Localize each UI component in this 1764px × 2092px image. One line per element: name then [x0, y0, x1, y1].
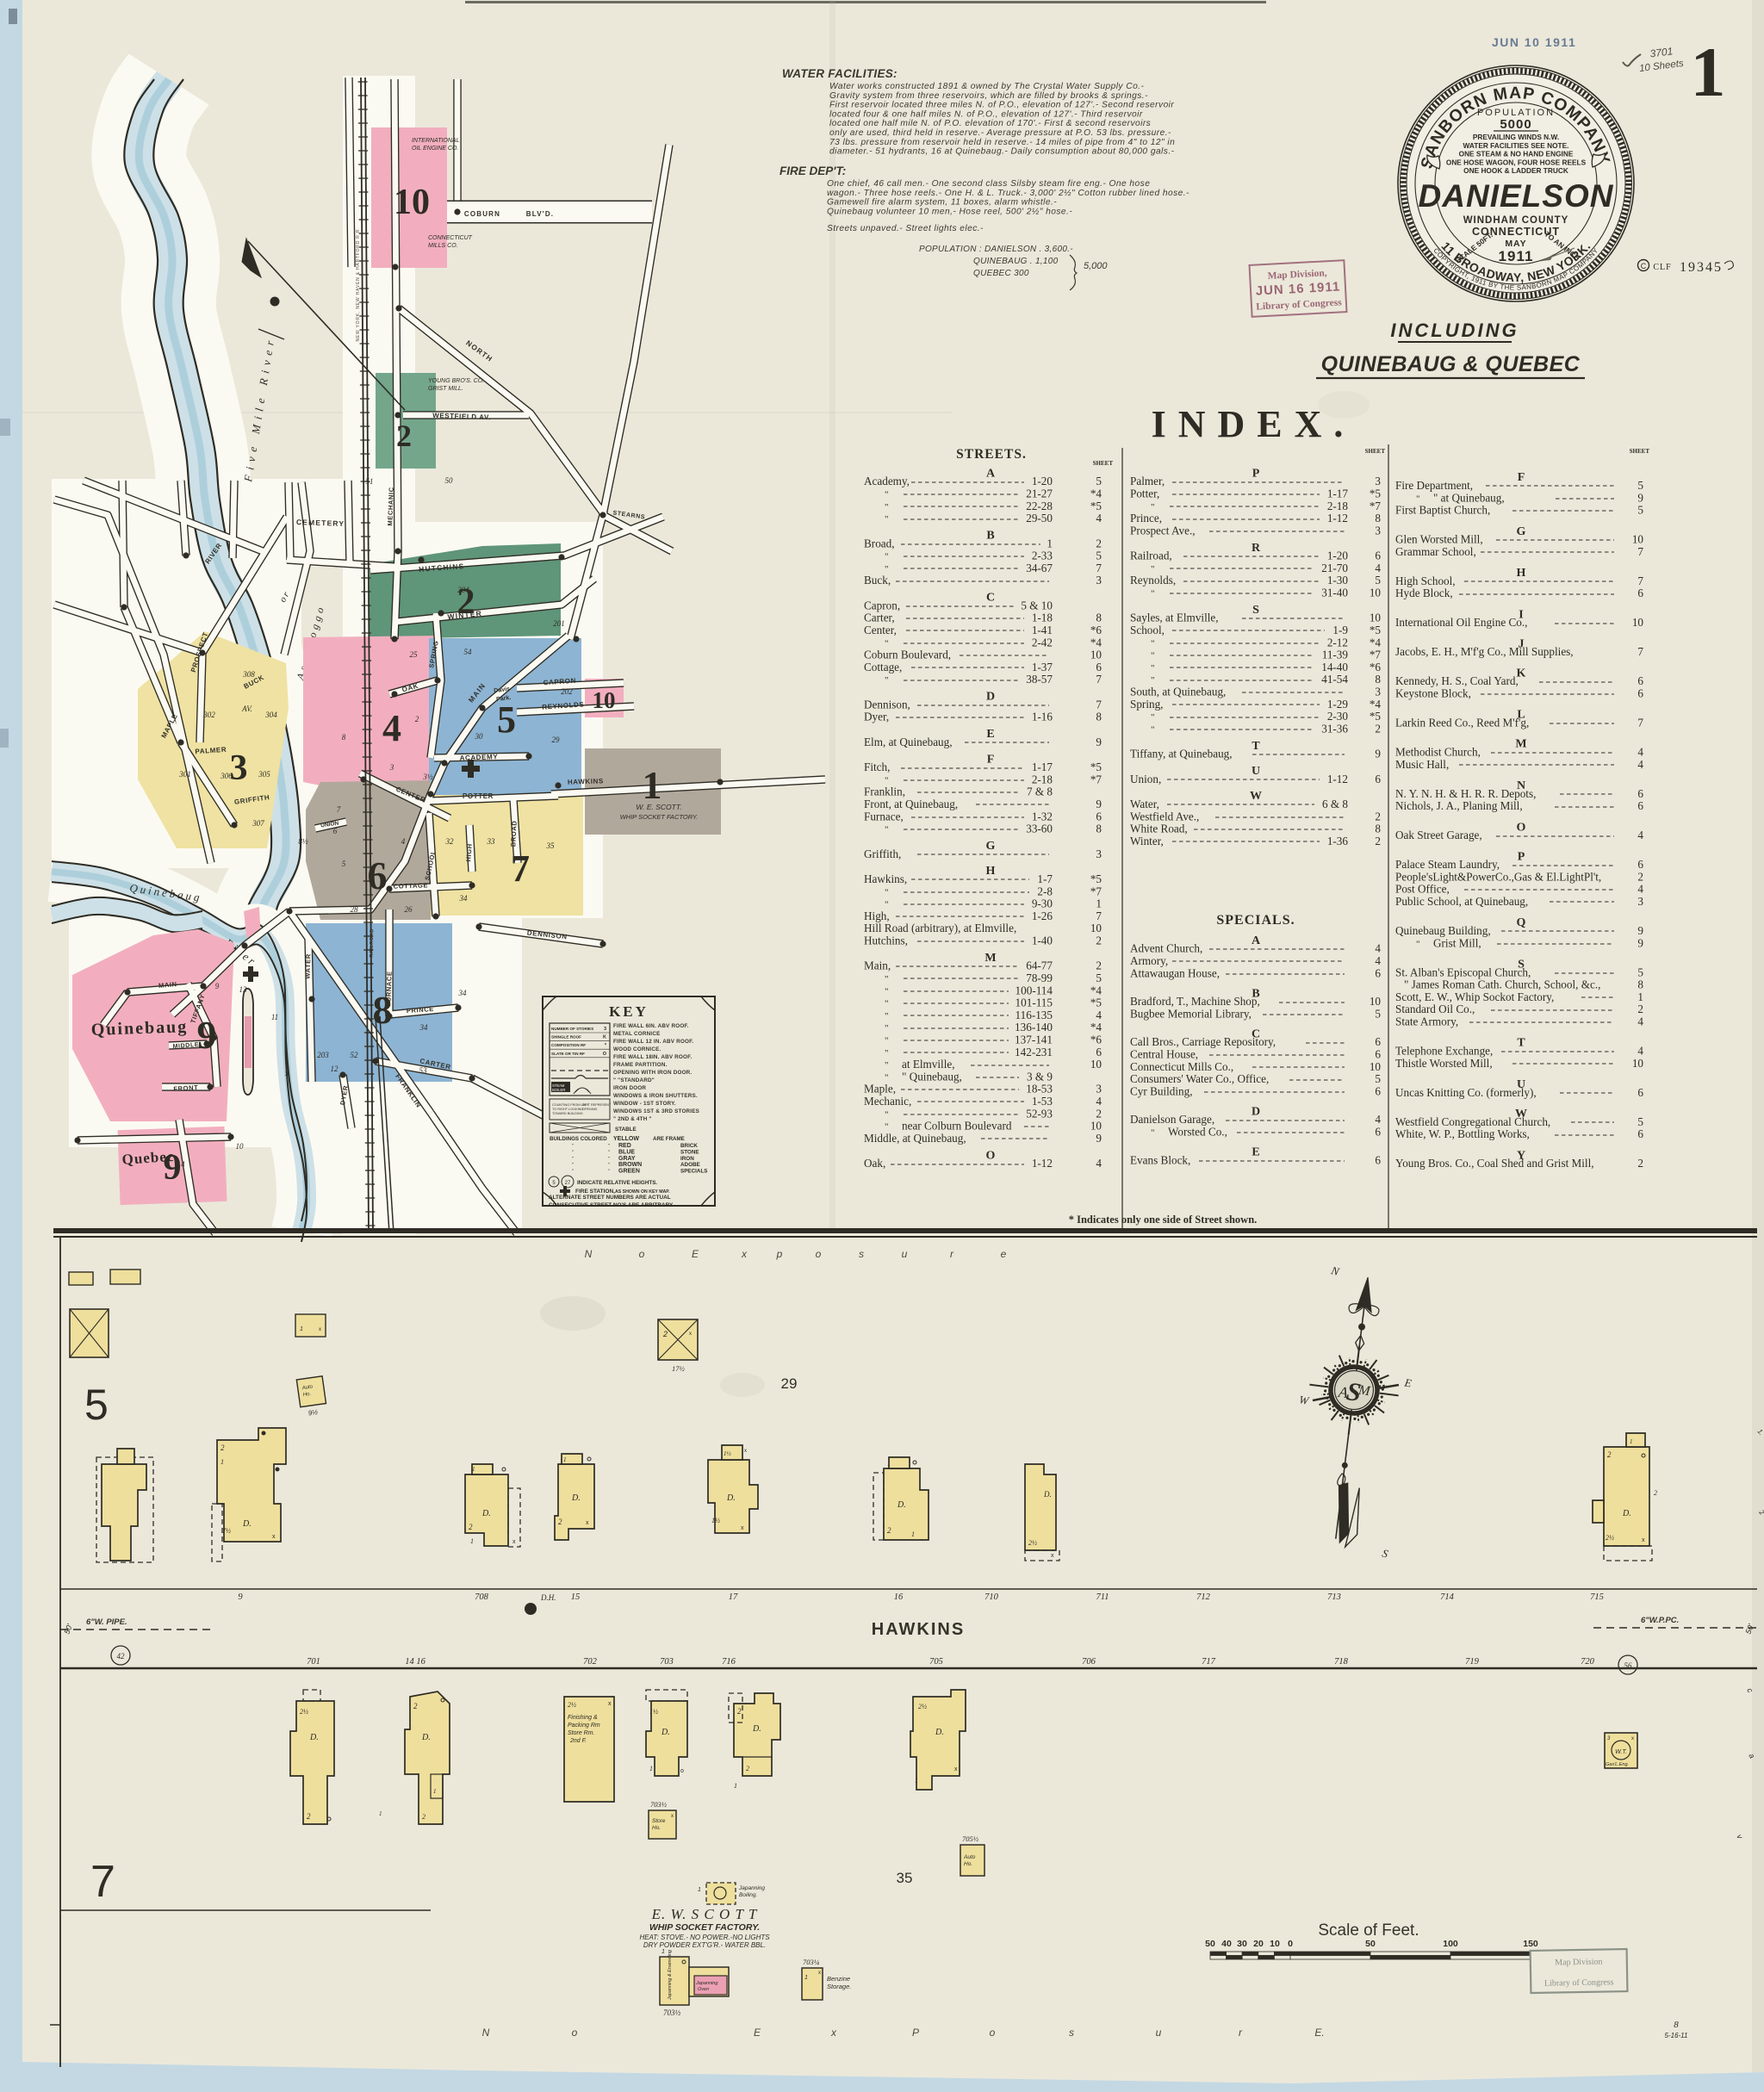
svg-text:Carter,: Carter, [864, 611, 895, 624]
svg-text:Telephone Exchange,: Telephone Exchange, [1395, 1045, 1493, 1058]
svg-text:10: 10 [1370, 587, 1382, 599]
svg-text:5: 5 [1637, 504, 1643, 517]
svg-text:Cyr Building,: Cyr Building, [1130, 1084, 1193, 1097]
svg-text:FIRE STATION,: FIRE STATION, [575, 1189, 615, 1195]
svg-text:O: O [1517, 821, 1526, 834]
svg-text:": " [572, 1150, 574, 1155]
svg-text:51: 51 [366, 477, 374, 486]
svg-text:": " [1151, 589, 1155, 599]
svg-text:D.: D. [661, 1728, 670, 1737]
svg-text:Standard Oil Co.,: Standard Oil Co., [1395, 1003, 1475, 1015]
svg-text:IRON: IRON [680, 1156, 694, 1162]
svg-text:located four & one half miles: located four & one half miles N. of P.O.… [829, 109, 1143, 119]
svg-text:D: D [986, 691, 995, 704]
svg-text:716: 716 [722, 1657, 736, 1667]
svg-text:WINDOWS & IRON SHUTTERS.: WINDOWS & IRON SHUTTERS. [613, 1093, 698, 1099]
svg-text:*4: *4 [1370, 636, 1382, 649]
svg-text:ONE HOOK & LADDER TRUCK: ONE HOOK & LADDER TRUCK [1463, 166, 1568, 175]
svg-text:12: 12 [331, 1065, 339, 1073]
svg-text:1-29: 1-29 [1327, 698, 1349, 711]
svg-text:": " [1151, 564, 1155, 574]
svg-text:50: 50 [1365, 1939, 1376, 1949]
svg-text:8: 8 [1674, 2020, 1679, 2030]
svg-text:10: 10 [236, 1142, 245, 1151]
svg-text:BUILDINGS COLORED: BUILDINGS COLORED [550, 1136, 607, 1142]
svg-text:6: 6 [333, 827, 338, 835]
svg-text:INDEX.: INDEX. [1152, 403, 1356, 445]
svg-text:7: 7 [337, 805, 341, 814]
svg-text:Griffith,: Griffith, [864, 847, 901, 860]
svg-text:Cottage,: Cottage, [864, 661, 902, 674]
svg-text:4: 4 [1375, 942, 1381, 955]
svg-text:10: 10 [1090, 1120, 1102, 1133]
svg-text:4: 4 [1637, 746, 1643, 759]
svg-text:6: 6 [1096, 810, 1102, 823]
svg-text:6: 6 [1637, 858, 1643, 871]
svg-text:3: 3 [604, 1027, 606, 1032]
svg-text:Attawaugan House,: Attawaugan House, [1130, 966, 1220, 979]
svg-text:10: 10 [1370, 1060, 1382, 1073]
svg-text:Water works constructed 1891 &: Water works constructed 1891 & owned by … [829, 82, 1144, 91]
svg-text:10: 10 [1632, 616, 1644, 629]
svg-text:701: 701 [307, 1657, 320, 1667]
svg-text:0: 0 [1288, 1939, 1293, 1949]
svg-text:Tiffany, at Quinebaug,: Tiffany, at Quinebaug, [1130, 748, 1233, 760]
svg-text:E: E [692, 1248, 699, 1260]
svg-text:5: 5 [1096, 475, 1102, 487]
svg-text:Furnace,: Furnace, [864, 810, 904, 823]
svg-text:5,000: 5,000 [1084, 261, 1108, 271]
svg-text:2-12: 2-12 [1327, 636, 1348, 649]
svg-text:53: 53 [419, 1066, 428, 1075]
svg-text:302: 302 [202, 711, 215, 719]
svg-text:1-26: 1-26 [1032, 909, 1053, 922]
svg-text:1: 1 [1047, 537, 1053, 549]
svg-text:DANIELSON: DANIELSON [1419, 178, 1614, 214]
svg-text:30: 30 [475, 732, 484, 741]
svg-text:*5: *5 [1090, 760, 1102, 773]
svg-text:POTTER: POTTER [463, 792, 494, 800]
svg-text:MAIN: MAIN [158, 980, 177, 990]
svg-text:": " [885, 1023, 889, 1034]
svg-text:Hutchins,: Hutchins, [864, 934, 908, 947]
svg-text:11: 11 [271, 1013, 278, 1021]
svg-text:*4: *4 [1090, 1021, 1102, 1034]
svg-text:KEY: KEY [609, 1003, 649, 1020]
svg-text:Palmer,: Palmer, [1130, 475, 1165, 487]
svg-text:only are used, third held in r: only are used, third held in reserve.- A… [829, 128, 1171, 138]
svg-text:2: 2 [396, 419, 412, 453]
svg-text:NUMBER OF STORIES: NUMBER OF STORIES [551, 1027, 593, 1031]
svg-text:FIRE WALL 6IN. ABV ROOF.: FIRE WALL 6IN. ABV ROOF. [613, 1023, 689, 1029]
svg-text:4: 4 [1637, 758, 1643, 771]
svg-text:INCLUDING: INCLUDING [1390, 320, 1519, 341]
svg-text:SHEET: SHEET [1630, 448, 1650, 455]
svg-text:MECHANIC: MECHANIC [386, 487, 395, 526]
svg-text:B: B [986, 530, 994, 543]
svg-text:Japanning: Japanning [695, 1981, 718, 1986]
svg-text:Nichols, J. A., Planing Mill,: Nichols, J. A., Planing Mill, [1395, 799, 1523, 812]
svg-text:ALTERNATE STREET NUMBERS ARE A: ALTERNATE STREET NUMBERS ARE ACTUAL [549, 1195, 671, 1201]
svg-text:4: 4 [1637, 829, 1643, 841]
svg-text:*5: *5 [1370, 624, 1382, 636]
svg-text:Uncas Knitting Co. (formerly),: Uncas Knitting Co. (formerly), [1395, 1086, 1537, 1099]
svg-text:7: 7 [1096, 673, 1102, 686]
svg-text:RAILROAD: RAILROAD [370, 928, 376, 958]
svg-text:GRIST MILL.: GRIST MILL. [428, 386, 463, 392]
svg-text:4: 4 [1637, 1015, 1643, 1028]
svg-text:*6: *6 [1090, 624, 1102, 636]
svg-text:": " [1151, 712, 1155, 723]
svg-text:": " [885, 1122, 889, 1133]
svg-text:1: 1 [1637, 990, 1643, 1003]
svg-text:INTERNATIONAL: INTERNATIONAL [412, 138, 460, 144]
svg-text:WATER FACILITIES:: WATER FACILITIES: [782, 67, 898, 80]
svg-text:JUN 10 1911: JUN 10 1911 [1492, 35, 1576, 49]
svg-text:*5: *5 [1090, 500, 1102, 512]
svg-text:3½: 3½ [422, 773, 433, 781]
svg-text:1: 1 [1096, 897, 1102, 910]
svg-text:715: 715 [1590, 1592, 1604, 1602]
svg-text:7: 7 [1096, 698, 1102, 711]
svg-text:BROWN: BROWN [618, 1162, 642, 1168]
svg-text:QUINEBAUG . 1,100: QUINEBAUG . 1,100 [973, 257, 1059, 266]
svg-text:34: 34 [459, 894, 469, 903]
svg-text:1: 1 [220, 1458, 224, 1466]
svg-text:COMPOSITION RF: COMPOSITION RF [551, 1043, 586, 1047]
svg-text:19345: 19345 [1680, 260, 1723, 275]
svg-text:AV.: AV. [241, 705, 252, 713]
svg-text:9-30: 9-30 [1032, 897, 1053, 910]
svg-text:South, at Quinebaug,: South, at Quinebaug, [1130, 686, 1226, 698]
svg-text:137-141: 137-141 [1015, 1034, 1053, 1046]
svg-text:710: 710 [984, 1592, 999, 1602]
svg-text:1: 1 [887, 1461, 891, 1468]
svg-text:D.: D. [726, 1493, 736, 1503]
svg-text:s: s [1069, 2027, 1074, 2039]
svg-text:1-12: 1-12 [1032, 1157, 1053, 1170]
svg-text:100-114: 100-114 [1016, 984, 1053, 996]
svg-text:6: 6 [1637, 1127, 1643, 1140]
svg-text:": " [608, 1150, 610, 1155]
svg-text:2½: 2½ [1606, 1534, 1614, 1542]
svg-text:Japanning & Enameling: Japanning & Enameling [668, 1949, 673, 2001]
svg-text:41-54: 41-54 [1321, 673, 1348, 686]
svg-text:STREETS.: STREETS. [956, 447, 1027, 462]
svg-text:6: 6 [1637, 587, 1643, 599]
svg-text:2: 2 [307, 1812, 311, 1821]
svg-text:6: 6 [1375, 1126, 1381, 1139]
svg-text:Coburn Boulevard,: Coburn Boulevard, [864, 649, 951, 661]
svg-text:Post Office,: Post Office, [1395, 883, 1450, 896]
svg-text:R: R [1252, 542, 1261, 555]
svg-text:6"W. PIPE.: 6"W. PIPE. [86, 1617, 127, 1627]
svg-text:2-30: 2-30 [1327, 710, 1349, 723]
svg-text:ACADEMY: ACADEMY [459, 753, 498, 762]
svg-text:42: 42 [117, 1652, 126, 1661]
svg-text:*4: *4 [1370, 698, 1382, 711]
svg-text:T: T [1517, 1037, 1525, 1050]
svg-text:A: A [1252, 934, 1261, 947]
svg-text:7: 7 [511, 847, 530, 890]
svg-text:Front, at Quinebaug,: Front, at Quinebaug, [864, 798, 958, 810]
svg-text:One chief, 46 call men.- One s: One chief, 46 call men.- One second clas… [827, 179, 1150, 189]
svg-text:C: C [1641, 262, 1647, 270]
svg-text:50: 50 [445, 476, 454, 485]
svg-text:8: 8 [1637, 978, 1643, 991]
svg-text:27: 27 [565, 1181, 571, 1186]
svg-text:QUINEBAUG & QUEBEC: QUINEBAUG & QUEBEC [1321, 352, 1581, 376]
svg-text:1-7: 1-7 [1037, 872, 1053, 885]
svg-text:BRICK: BRICK [680, 1143, 698, 1149]
svg-text:NEW YORK, NEW HAVEN & HARTFORD: NEW YORK, NEW HAVEN & HARTFORD R.R. [356, 227, 361, 341]
svg-text:Middle, at Quinebaug,: Middle, at Quinebaug, [864, 1132, 966, 1145]
svg-text:*5: *5 [1090, 872, 1102, 885]
svg-text:FIRE DEP'T:: FIRE DEP'T: [780, 165, 846, 177]
svg-text:": " [885, 999, 889, 1009]
svg-text:9½: 9½ [307, 1408, 319, 1418]
svg-text:21-27: 21-27 [1026, 487, 1053, 500]
svg-text:": " [885, 502, 889, 512]
svg-text:": " [885, 986, 889, 996]
svg-text:4: 4 [1096, 1095, 1102, 1108]
svg-text:2: 2 [413, 1702, 418, 1710]
svg-text:1: 1 [1630, 1438, 1633, 1445]
svg-text:HEAT: STOVE.- NO POWER.-NO LIG: HEAT: STOVE.- NO POWER.-NO LIGHTS [639, 1934, 770, 1941]
svg-text:FIRE WALL 18IN. ABV ROOF.: FIRE WALL 18IN. ABV ROOF. [613, 1054, 692, 1060]
svg-text:7: 7 [1637, 645, 1643, 658]
svg-text:6: 6 [1375, 773, 1381, 785]
svg-text:ADOBE: ADOBE [680, 1162, 700, 1168]
svg-text:1-40: 1-40 [1032, 934, 1053, 947]
svg-text:D.: D. [571, 1493, 581, 1503]
svg-text:ONE HOSE WAGON, FOUR HOSE REEL: ONE HOSE WAGON, FOUR HOSE REELS [1446, 158, 1587, 166]
svg-text:": " [885, 638, 889, 649]
svg-text:" "STANDARD": " "STANDARD" [613, 1077, 655, 1083]
svg-text:32: 32 [445, 837, 455, 846]
svg-text:31-40: 31-40 [1321, 587, 1348, 599]
svg-text:": " [885, 552, 889, 562]
svg-text:64-77: 64-77 [1026, 959, 1053, 972]
svg-text:*4: *4 [1090, 636, 1102, 649]
svg-text:": " [1151, 638, 1155, 649]
svg-text:SPECIALS: SPECIALS [680, 1169, 708, 1175]
svg-text:W.T.: W.T. [1615, 1749, 1627, 1755]
svg-text:Oak Street Garage,: Oak Street Garage, [1395, 829, 1482, 841]
svg-text:2: 2 [1375, 835, 1381, 847]
svg-text:WINDOWS 1ST & 3RD STORIES: WINDOWS 1ST & 3RD STORIES [613, 1108, 699, 1114]
svg-text:8: 8 [342, 733, 346, 742]
svg-text:BOILER: BOILER [552, 1088, 565, 1092]
svg-text:2½: 2½ [568, 1701, 576, 1709]
svg-text:5000: 5000 [1500, 117, 1531, 132]
svg-text:2nd F.: 2nd F. [569, 1738, 587, 1744]
svg-text:14 16: 14 16 [405, 1657, 425, 1667]
svg-text:305: 305 [258, 770, 270, 779]
svg-text:14-40: 14-40 [1321, 661, 1348, 674]
svg-text:D.: D. [1622, 1509, 1631, 1518]
svg-text:Dennison,: Dennison, [864, 698, 910, 711]
svg-text:2½: 2½ [918, 1703, 927, 1710]
svg-text:5: 5 [1637, 479, 1643, 492]
svg-text:Sayles, at Elmville,: Sayles, at Elmville, [1130, 611, 1219, 624]
svg-text:720: 720 [1581, 1657, 1595, 1667]
svg-text:YOUNG BRO'S. CO.: YOUNG BRO'S. CO. [428, 378, 484, 384]
svg-text:o: o [639, 1248, 645, 1260]
svg-text:2: 2 [1607, 1450, 1612, 1459]
svg-text:P: P [1252, 467, 1260, 480]
svg-text:17½: 17½ [672, 1364, 686, 1373]
svg-text:": " [885, 675, 889, 686]
svg-text:4: 4 [1096, 512, 1102, 525]
svg-text:Oak,: Oak, [864, 1157, 885, 1170]
svg-text:POPULATION : DANIELSON . 3,600: POPULATION : DANIELSON . 3,600.- [919, 245, 1073, 254]
svg-text:3: 3 [230, 748, 248, 788]
svg-text:p: p [776, 1248, 783, 1260]
svg-text:": " [885, 1072, 889, 1083]
svg-text:Boiling.: Boiling. [739, 1892, 758, 1898]
svg-text:2: 2 [1096, 1107, 1102, 1120]
svg-text:": " [608, 1170, 610, 1175]
svg-text:702: 702 [583, 1657, 598, 1667]
svg-text:o: o [990, 2027, 996, 2039]
svg-text:*5: *5 [1370, 487, 1382, 500]
svg-text:x: x [1642, 1537, 1645, 1543]
svg-text:Potter,: Potter, [1130, 487, 1159, 500]
svg-text:Quinebaug volunteer 10 men,- H: Quinebaug volunteer 10 men,- Hose reel, … [827, 207, 1072, 216]
svg-text:8: 8 [1375, 512, 1381, 525]
svg-text:x: x [272, 1534, 276, 1540]
svg-text:1: 1 [300, 1326, 303, 1332]
svg-text:Gravity system from three rese: Gravity system from three reservoirs, wh… [829, 91, 1148, 101]
svg-text:DO T REPRESENT: DO T REPRESENT [582, 1103, 612, 1107]
svg-text:WINDHAM COUNTY: WINDHAM COUNTY [1463, 215, 1569, 226]
svg-text:": " [885, 1109, 889, 1120]
svg-text:1911: 1911 [1499, 248, 1534, 264]
svg-text:2: 2 [887, 1526, 891, 1535]
svg-text:x: x [954, 1766, 958, 1772]
svg-text:2½: 2½ [300, 1708, 308, 1716]
svg-text:P: P [1518, 850, 1525, 863]
svg-text:x: x [608, 1701, 612, 1707]
svg-text:D: D [1252, 1105, 1260, 1118]
svg-text:136-140: 136-140 [1015, 1021, 1053, 1034]
svg-text:x: x [689, 1332, 692, 1337]
svg-text:2: 2 [457, 582, 475, 622]
svg-text:30: 30 [1237, 1939, 1247, 1949]
svg-text:7: 7 [1637, 545, 1643, 558]
svg-text:6: 6 [368, 854, 388, 897]
svg-text:DRY POWDER EXT'G'R.- WATER BBL: DRY POWDER EXT'G'R.- WATER BBL. [643, 1941, 766, 1949]
svg-text:P: P [912, 2027, 919, 2039]
svg-text:Reynolds,: Reynolds, [1130, 574, 1176, 587]
svg-text:F: F [1518, 471, 1525, 484]
svg-text:28: 28 [351, 905, 359, 914]
svg-text:Jacobs, E. H., M'f'g Co., Mill: Jacobs, E. H., M'f'g Co., Mill Supplies, [1395, 645, 1574, 658]
svg-text:High,: High, [864, 909, 890, 922]
svg-text:Scale of Feet.: Scale of Feet. [1318, 1921, 1419, 1940]
svg-text:9: 9 [1637, 936, 1643, 949]
svg-text:BROAD: BROAD [509, 820, 519, 847]
svg-text:2: 2 [1096, 934, 1102, 947]
svg-text:10: 10 [1090, 649, 1102, 661]
svg-text:x: x [319, 1327, 321, 1332]
svg-text:1-30: 1-30 [1327, 574, 1349, 587]
svg-text:E: E [754, 2027, 761, 2039]
svg-text:6: 6 [1637, 687, 1643, 700]
svg-text:Danielson Garage,: Danielson Garage, [1130, 1113, 1214, 1126]
svg-text:Kennedy, H. S., Coal Yard,: Kennedy, H. S., Coal Yard, [1395, 674, 1519, 687]
svg-text:Methodist Church,: Methodist Church, [1395, 746, 1481, 759]
svg-text:W. E. SCOTT.: W. E. SCOTT. [636, 803, 681, 811]
svg-text:6: 6 [1375, 1035, 1381, 1048]
svg-text:x: x [830, 2027, 837, 2039]
svg-text:9: 9 [1096, 798, 1102, 810]
svg-text:D.: D. [481, 1509, 491, 1518]
svg-text:706: 706 [1082, 1657, 1096, 1667]
svg-text:73 lbs. pressure from reservoi: 73 lbs. pressure from reservoir held in … [829, 138, 1175, 147]
svg-text:D.: D. [935, 1728, 944, 1737]
svg-text:Gamewell fire alarm system, 11: Gamewell fire alarm system, 11 boxes, al… [827, 198, 1057, 208]
svg-text:1: 1 [472, 1466, 475, 1473]
svg-text:x: x [586, 1520, 589, 1526]
svg-text:1: 1 [649, 1765, 653, 1772]
svg-text:TOWARD BUILDING: TOWARD BUILDING [552, 1112, 583, 1115]
svg-text:29: 29 [781, 1375, 798, 1392]
svg-text:1: 1 [643, 763, 662, 807]
svg-text:6: 6 [1637, 1086, 1643, 1099]
svg-text:3: 3 [389, 763, 394, 772]
svg-text:Worsted Co.,: Worsted Co., [1168, 1126, 1227, 1139]
svg-text:10: 10 [593, 687, 616, 713]
svg-text:301: 301 [178, 770, 191, 779]
svg-text:CONSECUTIVE STREET NO'S ARE AR: CONSECUTIVE STREET NO'S ARE ARBITRARY. [549, 1202, 674, 1208]
svg-text:713: 713 [1327, 1592, 1341, 1602]
svg-text:10: 10 [1632, 533, 1644, 546]
svg-text:34: 34 [419, 1023, 429, 1032]
svg-text:Quinebaug: Quinebaug [90, 1017, 188, 1040]
svg-text:116-135: 116-135 [1016, 1009, 1053, 1021]
svg-text:Fitch,: Fitch, [864, 760, 890, 773]
svg-text:2-33: 2-33 [1032, 549, 1053, 562]
svg-text:": " [885, 1048, 889, 1058]
svg-text:1-37: 1-37 [1032, 661, 1053, 674]
svg-text:6: 6 [1375, 966, 1381, 979]
svg-text:1-41: 1-41 [1032, 624, 1053, 636]
svg-text:": " [572, 1163, 574, 1168]
svg-text:2: 2 [469, 1523, 473, 1531]
svg-text:": " [885, 1036, 889, 1046]
svg-text:GREEN: GREEN [618, 1169, 640, 1175]
svg-text:*7: *7 [1370, 649, 1382, 661]
svg-text:People'sLight&PowerCo.,Gas & E: People'sLight&PowerCo.,Gas & El.LightPl'… [1395, 870, 1601, 883]
svg-text:1: 1 [470, 1537, 474, 1545]
svg-text:": " [885, 490, 889, 500]
svg-text:1: 1 [563, 1456, 567, 1463]
svg-text:52: 52 [351, 1051, 359, 1059]
svg-text:s: s [859, 1248, 864, 1260]
svg-text:": " [885, 887, 889, 897]
svg-text:at Elmville,: at Elmville, [902, 1058, 955, 1071]
svg-text:2-42: 2-42 [1032, 636, 1053, 649]
svg-text:4: 4 [1096, 1009, 1102, 1021]
svg-text:1-20: 1-20 [1327, 549, 1349, 562]
svg-text:9: 9 [1375, 748, 1381, 760]
svg-text:WATER: WATER [303, 953, 312, 979]
svg-text:W: W [1250, 790, 1262, 803]
svg-text:9: 9 [1637, 491, 1643, 504]
svg-text:10: 10 [1370, 995, 1382, 1008]
